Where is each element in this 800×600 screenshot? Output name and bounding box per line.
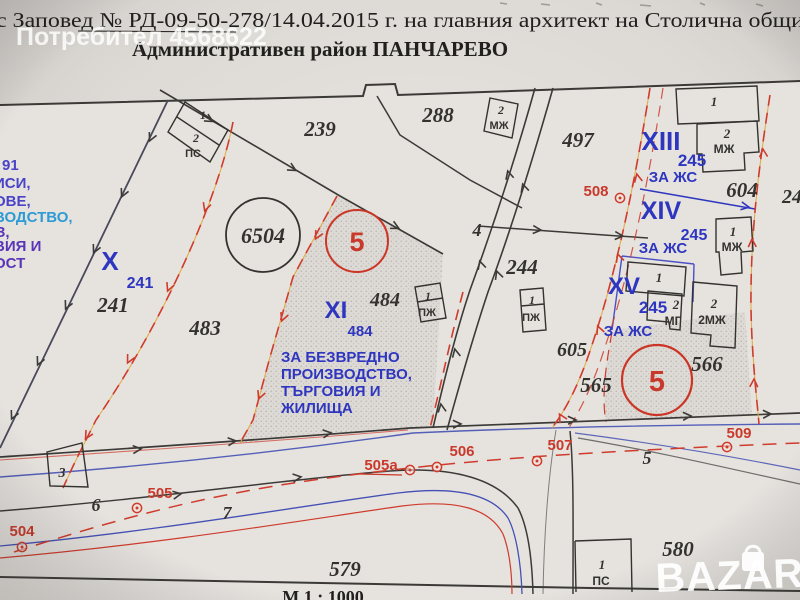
user-watermark: Потребител 4568622 — [16, 23, 267, 51]
cadastral-map-photo: с Заповед № РД-09-50-278/14.04.2015 г. н… — [0, 0, 800, 600]
site-logo-watermark: BAZAR — [655, 546, 800, 600]
photo-vignette — [0, 0, 800, 600]
site-logo-text: BAZAR — [655, 550, 800, 600]
cadastral-map-svg: с Заповед № РД-09-50-278/14.04.2015 г. н… — [0, 0, 800, 600]
